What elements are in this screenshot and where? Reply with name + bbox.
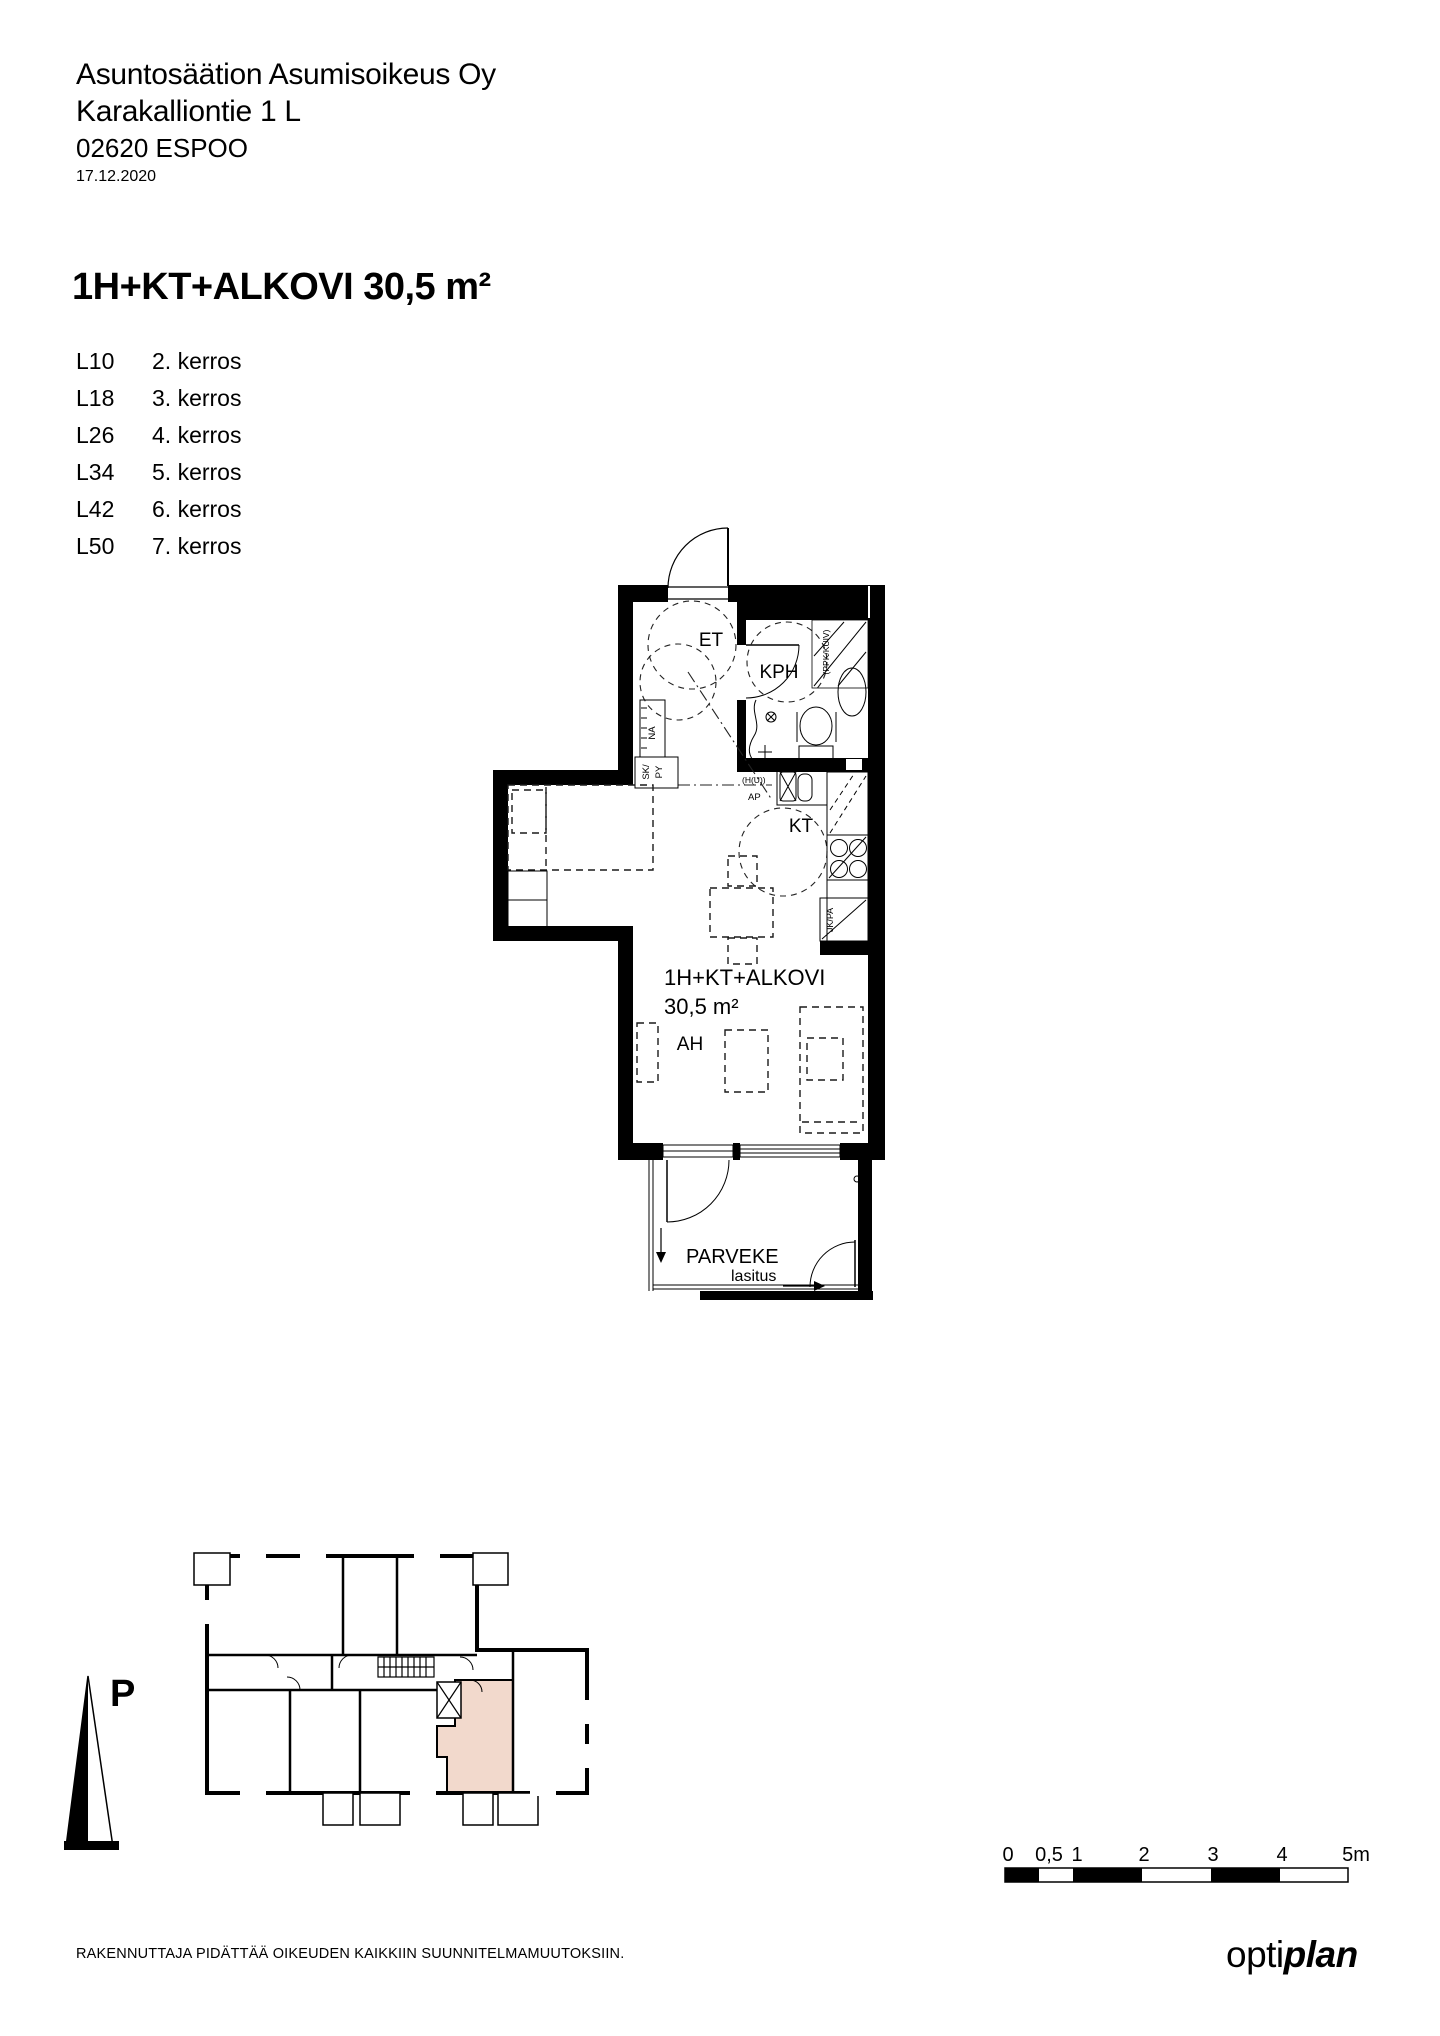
- wall: [618, 926, 633, 1160]
- cleaning-closet-label-2: PY: [654, 765, 665, 778]
- shaft: [437, 1682, 461, 1718]
- pillow: [512, 790, 546, 833]
- scale-tick-label: 0,5: [1035, 1844, 1063, 1866]
- room-label-kitchen: KT: [789, 816, 814, 837]
- toilet-tank: [799, 746, 833, 759]
- wall: [820, 941, 868, 955]
- plan-area-label-line1: 1H+KT+ALKOVI: [664, 965, 825, 990]
- bedside-cabinet: [508, 871, 547, 928]
- chair: [728, 938, 757, 964]
- glazing-door-swing: [810, 1242, 855, 1287]
- windows: [663, 1145, 840, 1157]
- wall: [618, 585, 633, 785]
- balcony-railing: [700, 1291, 873, 1300]
- arrow-down: [656, 1252, 666, 1263]
- dining-table: [710, 888, 773, 937]
- stairwell: [378, 1657, 434, 1677]
- wall: [737, 758, 885, 772]
- scale-bar: 0 0,5 1 2 3 4 5m: [1002, 1844, 1369, 1882]
- scale-tick-label: 5m: [1342, 1844, 1370, 1866]
- scale-tick-label: 3: [1207, 1844, 1218, 1866]
- stove-burner: [850, 840, 867, 857]
- kitchen-fixtures: [777, 768, 868, 941]
- stove-burner: [831, 840, 848, 857]
- wall-structure: [493, 585, 885, 1300]
- room-label-living: AH: [677, 1034, 703, 1055]
- room-label-bathroom: KPH: [759, 662, 798, 683]
- toilet-bowl: [800, 707, 832, 745]
- bed: [508, 785, 653, 870]
- wall: [728, 585, 885, 602]
- wall: [840, 1143, 885, 1160]
- bathroom-fixtures: [749, 620, 868, 760]
- plan-area-label-line2: 30,5 m²: [664, 994, 739, 1019]
- coffee-table: [725, 1030, 768, 1092]
- dishwasher-label: AP: [748, 792, 761, 803]
- washbasin: [838, 668, 866, 716]
- stove-burner: [831, 861, 848, 878]
- wall: [493, 770, 633, 785]
- stove-burner: [850, 861, 867, 878]
- balcony-label: PARVEKE: [686, 1246, 779, 1268]
- north-label: P: [110, 1673, 135, 1715]
- wall: [618, 1143, 663, 1160]
- scale-tick-label: 0: [1002, 1844, 1013, 1866]
- living-furniture: [637, 1007, 863, 1133]
- window: [740, 1145, 840, 1157]
- wall: [746, 602, 885, 620]
- stove-reservation-label: (H(U)): [742, 775, 766, 785]
- wall: [733, 1143, 740, 1160]
- room-label-entry: ET: [699, 630, 724, 651]
- scale-tick-label: 1: [1071, 1844, 1082, 1866]
- apartment-plan: ET KPH KT AH 1H+KT+ALKOVI 30,5 m² PARVEK…: [493, 528, 885, 1300]
- duct-notch: [846, 759, 862, 770]
- sofa: [800, 1007, 863, 1133]
- wall: [493, 770, 508, 941]
- wall: [868, 585, 885, 1160]
- sink-bowl: [798, 774, 812, 801]
- armchair: [637, 1023, 658, 1082]
- key-plan: [194, 1553, 590, 1825]
- balcony-door-swing: [667, 1160, 729, 1222]
- scale-tick-label: 4: [1276, 1844, 1287, 1866]
- dryer-label: (PPK/KUIV): [821, 629, 831, 674]
- wall-bathroom-partition: [737, 602, 746, 645]
- floorplan-canvas: ET KPH KT AH 1H+KT+ALKOVI 30,5 m² PARVEK…: [0, 0, 1440, 2036]
- entry-door: [668, 528, 728, 599]
- chair: [728, 856, 757, 886]
- sink-counter: [777, 768, 827, 805]
- cleaning-closet-label-1: SK/: [641, 764, 652, 780]
- scale-tick-label: 2: [1138, 1844, 1149, 1866]
- fridge-label: JK/PA: [825, 908, 835, 932]
- coat-rack-label: NA: [647, 726, 658, 740]
- shower-curtain: [749, 700, 756, 760]
- balcony-glazing-label: lasitus: [731, 1268, 776, 1285]
- north-arrow: P: [64, 1673, 135, 1850]
